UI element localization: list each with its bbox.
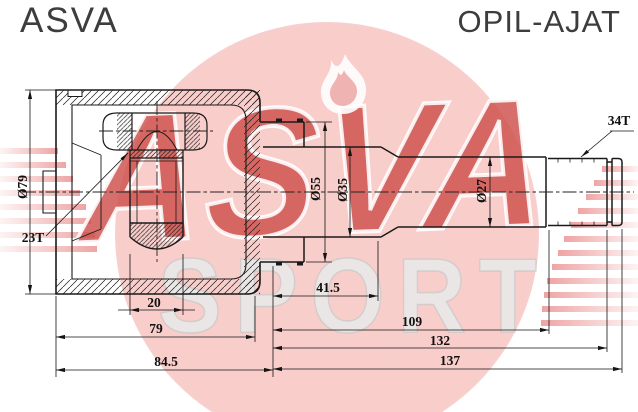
label-boot-groove-diameter: Ø55: [308, 177, 324, 201]
dimension-lines: [25, 90, 634, 377]
dim-inner-spline-length: 20: [147, 295, 161, 311]
dim-shaft-to-groove-length: 132: [430, 333, 450, 349]
dim-housing-overall-length: 84.5: [154, 354, 178, 370]
label-inner-spline-teeth: 23T: [22, 230, 45, 246]
label-outer-spline-teeth: 34T: [608, 113, 631, 129]
label-shaft-diameter: Ø27: [474, 179, 490, 203]
brand-title: ASVA: [20, 1, 119, 41]
dim-housing-length: 79: [149, 321, 163, 337]
tripod-bearing: [103, 113, 207, 249]
dim-shaft-overall-length: 137: [440, 353, 460, 369]
part-number: OPIL-AJAT: [458, 4, 621, 40]
dim-shaft-to-spline-length: 109: [402, 314, 422, 330]
centerlines: [22, 101, 634, 262]
dim-boot-section-length: 41.5: [316, 280, 340, 296]
label-shaft-step-diameter: Ø35: [335, 178, 351, 202]
cv-joint-technical-drawing: [0, 0, 638, 412]
label-housing-diameter: Ø79: [15, 175, 31, 199]
cv-joint-schematic-page: SPORT ASVA: [0, 0, 638, 412]
